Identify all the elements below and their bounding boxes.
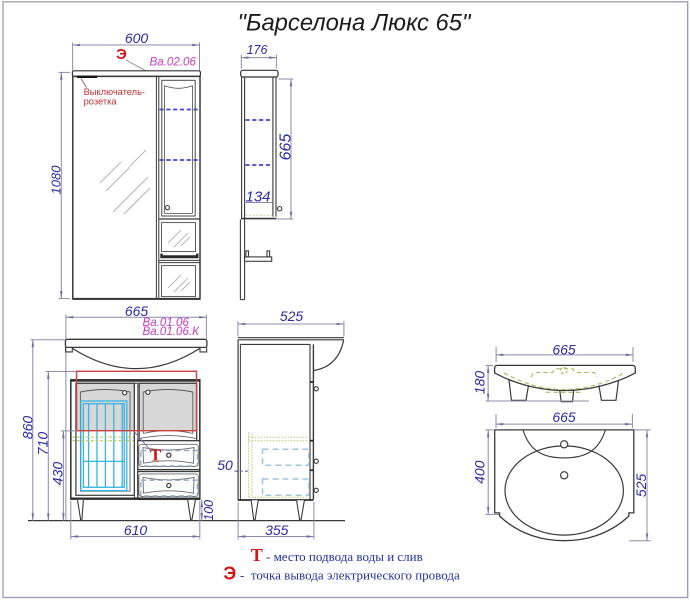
svg-text:1080: 1080 [49, 165, 64, 195]
svg-text:430: 430 [50, 462, 66, 486]
svg-text:180: 180 [471, 371, 487, 395]
svg-text:100: 100 [202, 500, 216, 521]
svg-text:Т: Т [150, 445, 162, 464]
svg-text:665: 665 [552, 409, 576, 425]
svg-text:176: 176 [247, 43, 268, 57]
svg-text:525: 525 [280, 308, 304, 324]
svg-text:134: 134 [245, 189, 270, 206]
svg-text:Выключатель-: Выключатель- [84, 87, 145, 97]
svg-text:розетка: розетка [84, 96, 118, 106]
svg-text:525: 525 [633, 474, 649, 498]
svg-text:"Барселона Люкс 65": "Барселона Люкс 65" [238, 10, 473, 37]
svg-text:- место подвода воды и слив: - место подвода воды и слив [266, 549, 423, 564]
svg-text:710: 710 [35, 432, 51, 456]
svg-text:665: 665 [278, 134, 295, 161]
svg-text:Э: Э [223, 564, 236, 584]
svg-text:355: 355 [265, 522, 289, 538]
svg-text:610: 610 [124, 522, 148, 538]
svg-text:860: 860 [19, 416, 35, 440]
svg-text:Ва.01.06.К: Ва.01.06.К [143, 325, 201, 338]
svg-text:50: 50 [217, 457, 233, 473]
svg-text:665: 665 [552, 341, 576, 357]
svg-text:400: 400 [471, 460, 487, 484]
svg-text:Т: Т [251, 545, 263, 565]
svg-text:- точка вывода электрического: - точка вывода электрического провода [240, 568, 460, 583]
svg-text:Ва.02.06: Ва.02.06 [150, 56, 197, 69]
svg-text:600: 600 [125, 30, 149, 46]
svg-text:Э: Э [116, 46, 127, 63]
